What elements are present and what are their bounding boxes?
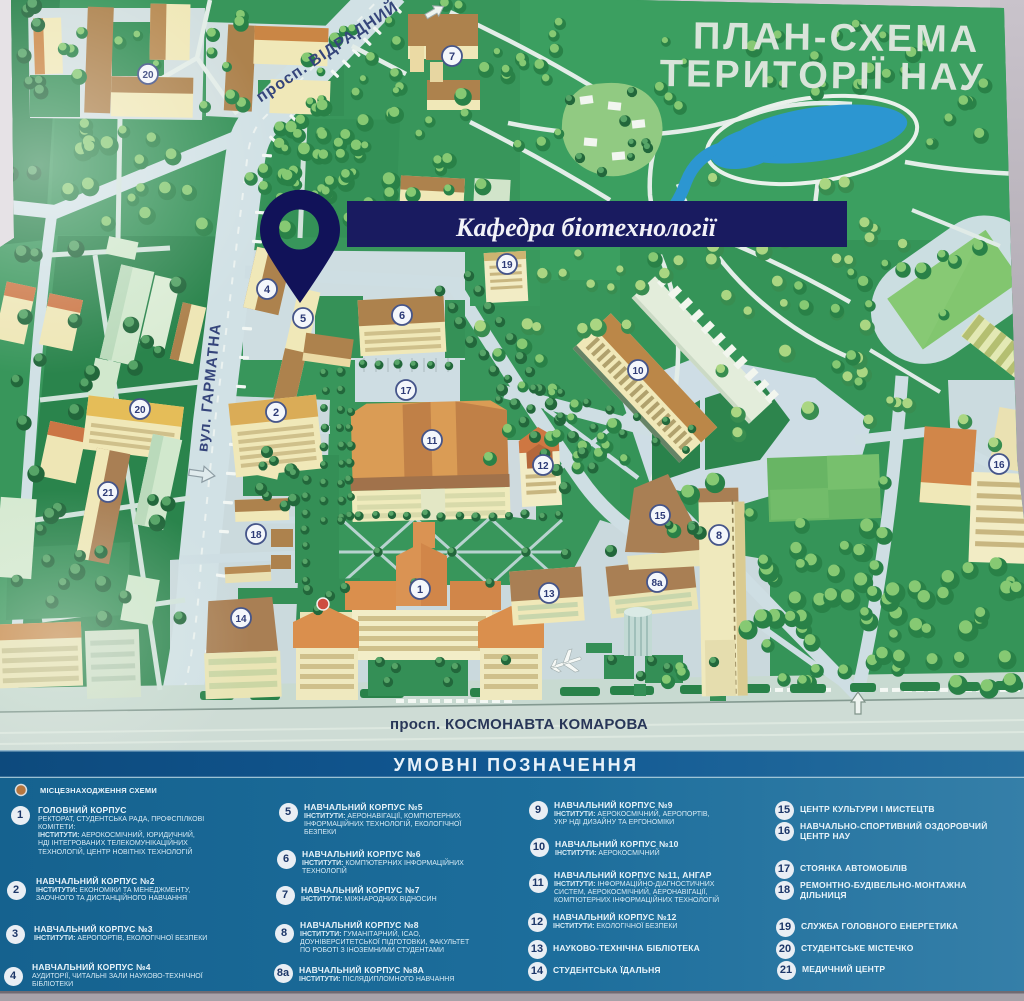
svg-text:Кафедра біотехнології: Кафедра біотехнології	[455, 213, 718, 242]
svg-text:УМОВНІ ПОЗНАЧЕННЯ: УМОВНІ ПОЗНАЧЕННЯ	[393, 755, 638, 775]
